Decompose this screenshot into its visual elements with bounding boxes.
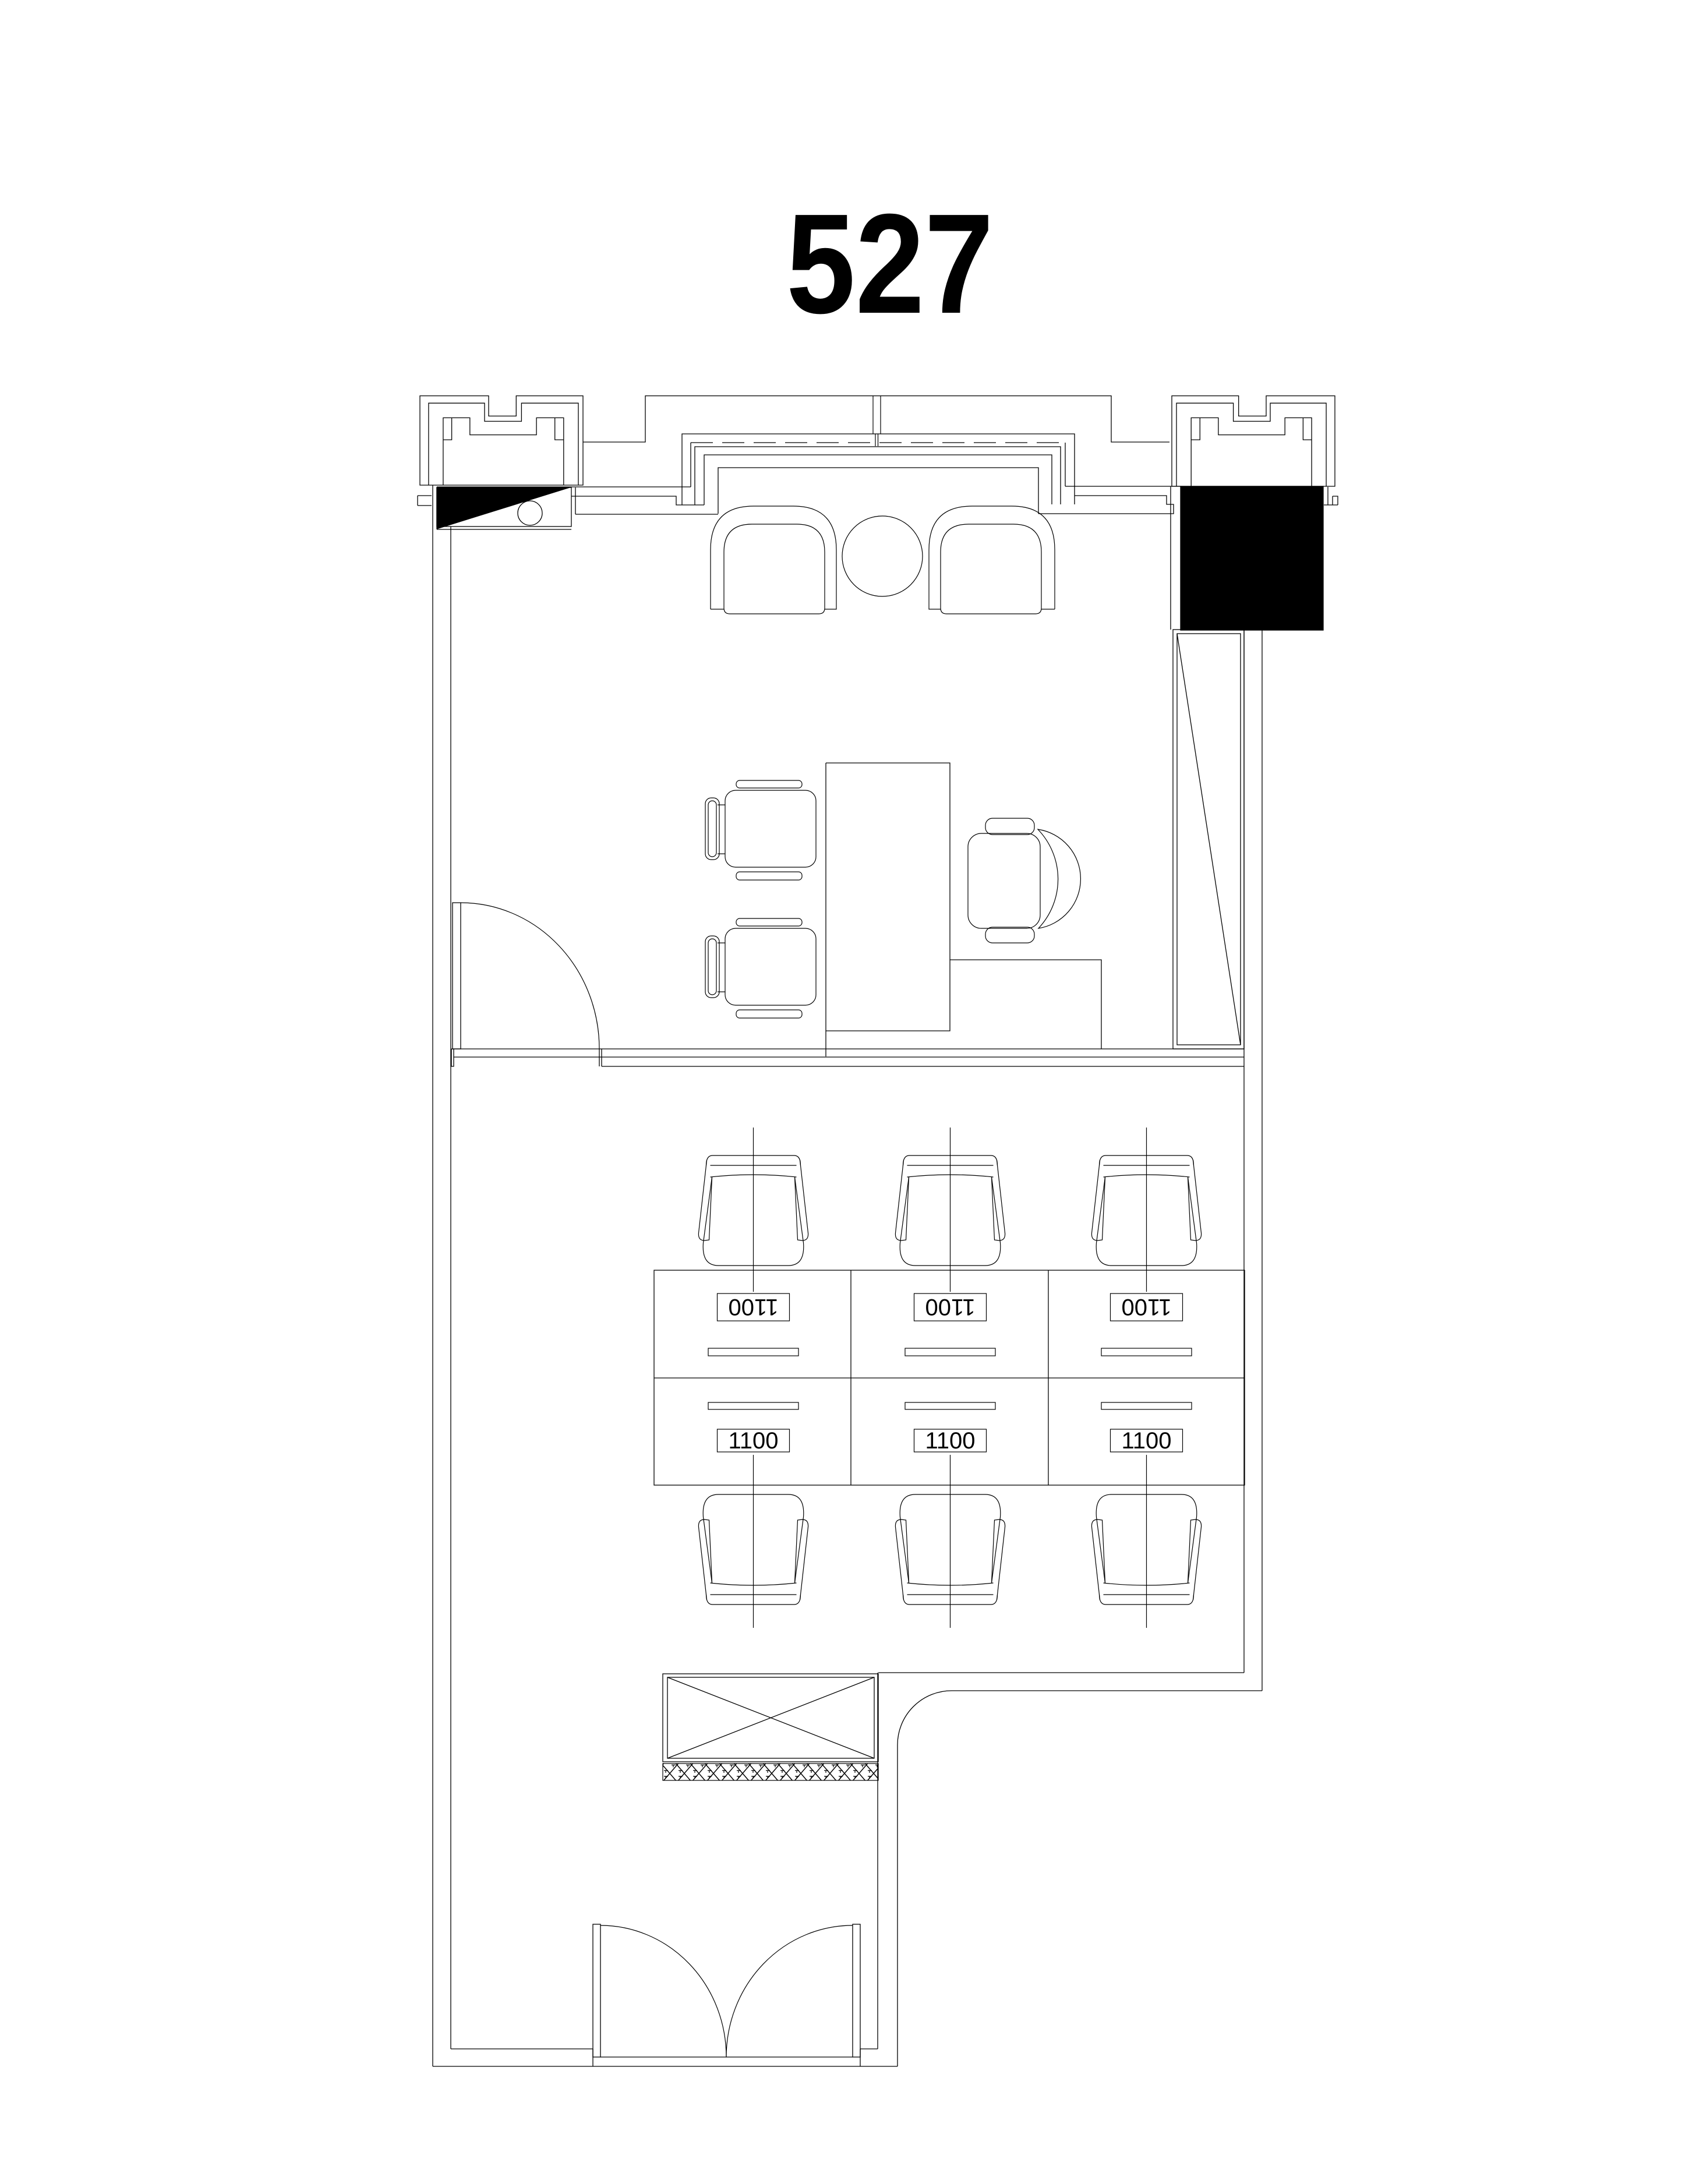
svg-text:527: 527: [786, 184, 994, 343]
svg-text:1100: 1100: [925, 1428, 975, 1454]
svg-text:1100: 1100: [925, 1294, 975, 1320]
svg-text:1100: 1100: [1121, 1294, 1171, 1320]
svg-text:1100: 1100: [728, 1428, 778, 1454]
svg-text:1100: 1100: [728, 1294, 778, 1320]
svg-text:1100: 1100: [1121, 1428, 1171, 1454]
